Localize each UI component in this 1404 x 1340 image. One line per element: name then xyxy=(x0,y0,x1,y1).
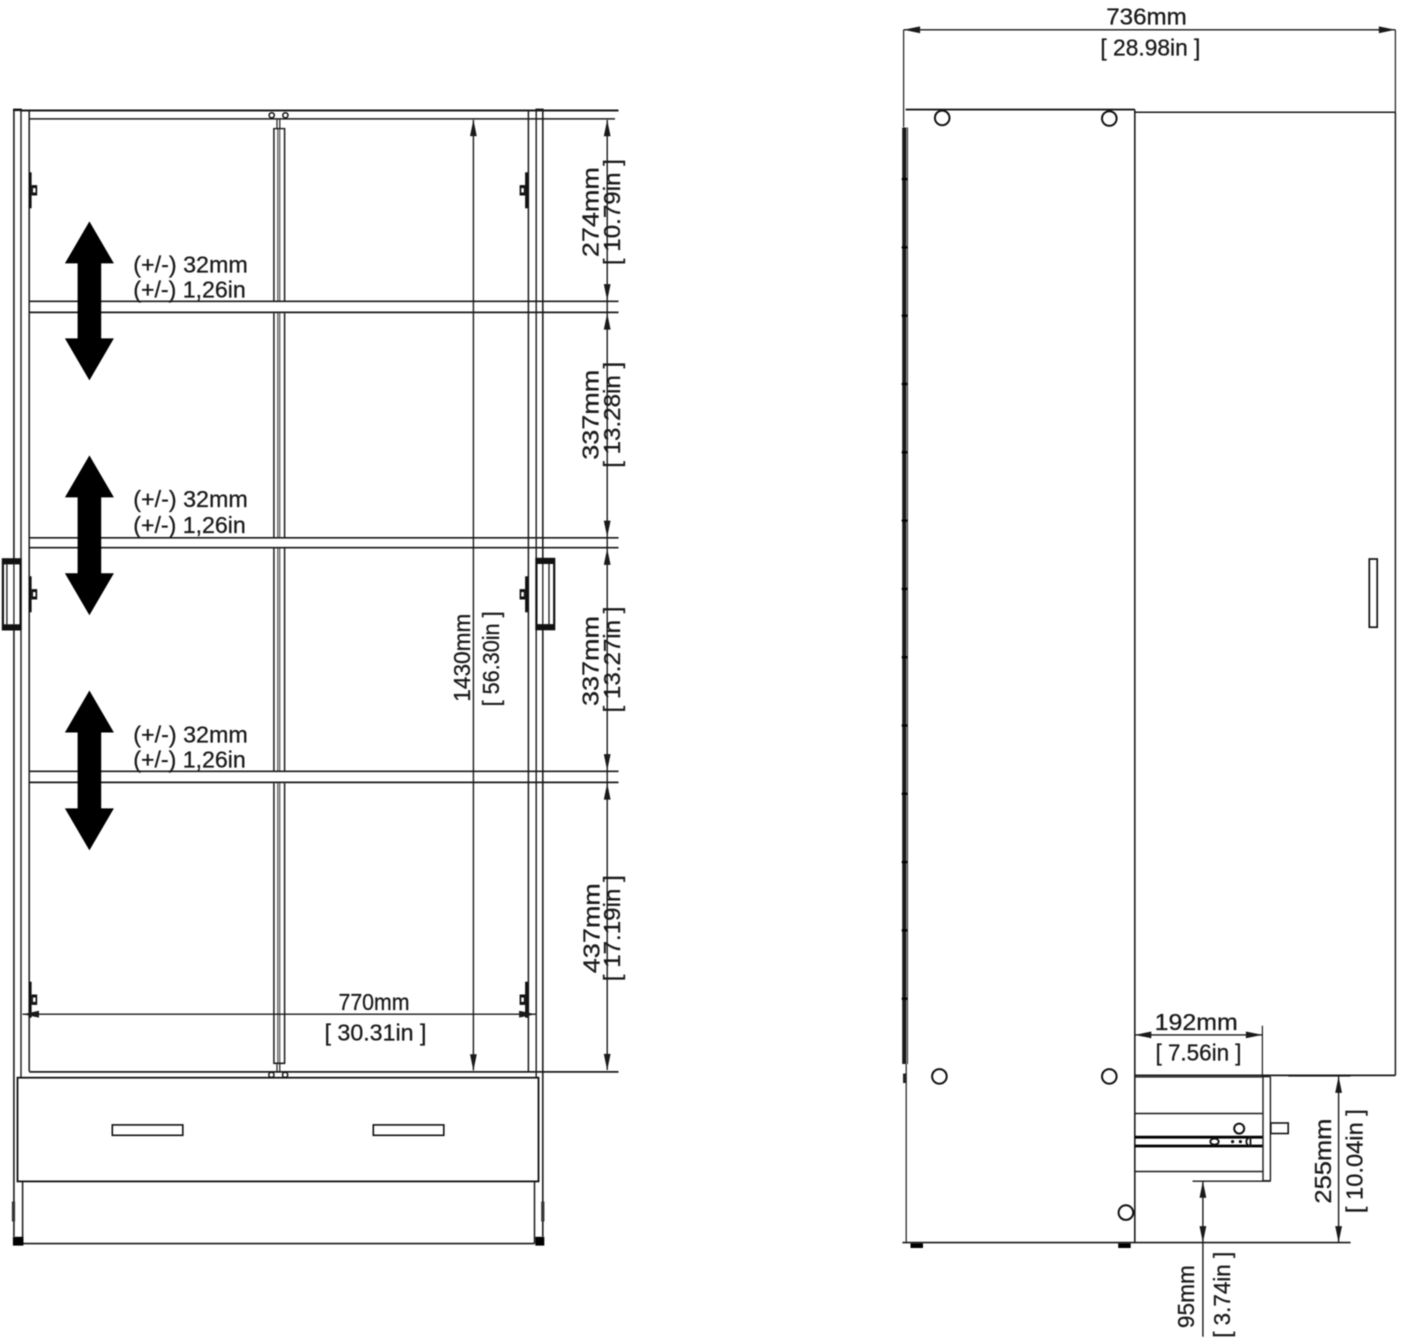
svg-text:[ 28.98in ]: [ 28.98in ] xyxy=(1100,34,1200,60)
svg-text:[ 3.74in ]: [ 3.74in ] xyxy=(1209,1252,1235,1338)
svg-text:[ 10.79in ]: [ 10.79in ] xyxy=(599,159,625,265)
svg-text:770mm: 770mm xyxy=(339,989,410,1015)
svg-text:736mm: 736mm xyxy=(1106,3,1187,29)
svg-text:[ 13.27in ]: [ 13.27in ] xyxy=(599,607,625,713)
svg-text:95mm: 95mm xyxy=(1173,1265,1199,1328)
svg-text:[ 7.56in ]: [ 7.56in ] xyxy=(1156,1040,1242,1066)
svg-text:255mm: 255mm xyxy=(1310,1119,1336,1204)
svg-text:[ 13.28in ]: [ 13.28in ] xyxy=(599,362,625,468)
svg-text:[ 30.31in ]: [ 30.31in ] xyxy=(325,1020,427,1046)
svg-text:(+/-) 1,26in: (+/-) 1,26in xyxy=(133,512,246,538)
svg-text:192mm: 192mm xyxy=(1155,1009,1238,1035)
svg-text:(+/-) 1,26in: (+/-) 1,26in xyxy=(133,746,246,772)
svg-text:[ 10.04in ]: [ 10.04in ] xyxy=(1342,1109,1368,1213)
svg-text:(+/-) 32mm: (+/-) 32mm xyxy=(133,486,248,512)
svg-text:(+/-) 32mm: (+/-) 32mm xyxy=(133,252,248,278)
svg-text:[ 56.30in ]: [ 56.30in ] xyxy=(478,611,504,706)
svg-text:[ 17.19in ]: [ 17.19in ] xyxy=(599,875,625,981)
svg-text:(+/-) 32mm: (+/-) 32mm xyxy=(133,722,248,748)
svg-text:(+/-) 1,26in: (+/-) 1,26in xyxy=(133,277,246,303)
svg-text:1430mm: 1430mm xyxy=(449,614,475,702)
